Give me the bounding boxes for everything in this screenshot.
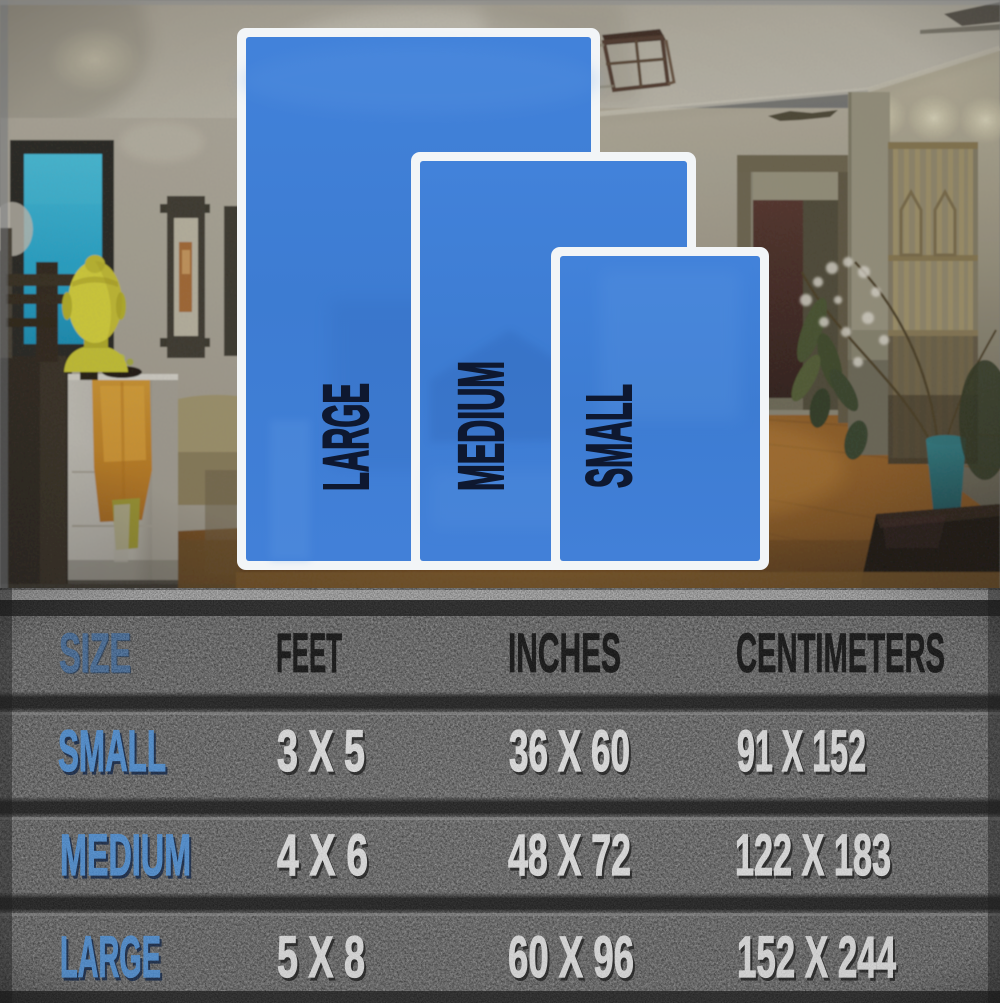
- svg-text:MEDIUM: MEDIUM: [445, 361, 517, 491]
- svg-text:LARGE: LARGE: [310, 383, 382, 491]
- svg-text:SMALL: SMALL: [573, 384, 645, 488]
